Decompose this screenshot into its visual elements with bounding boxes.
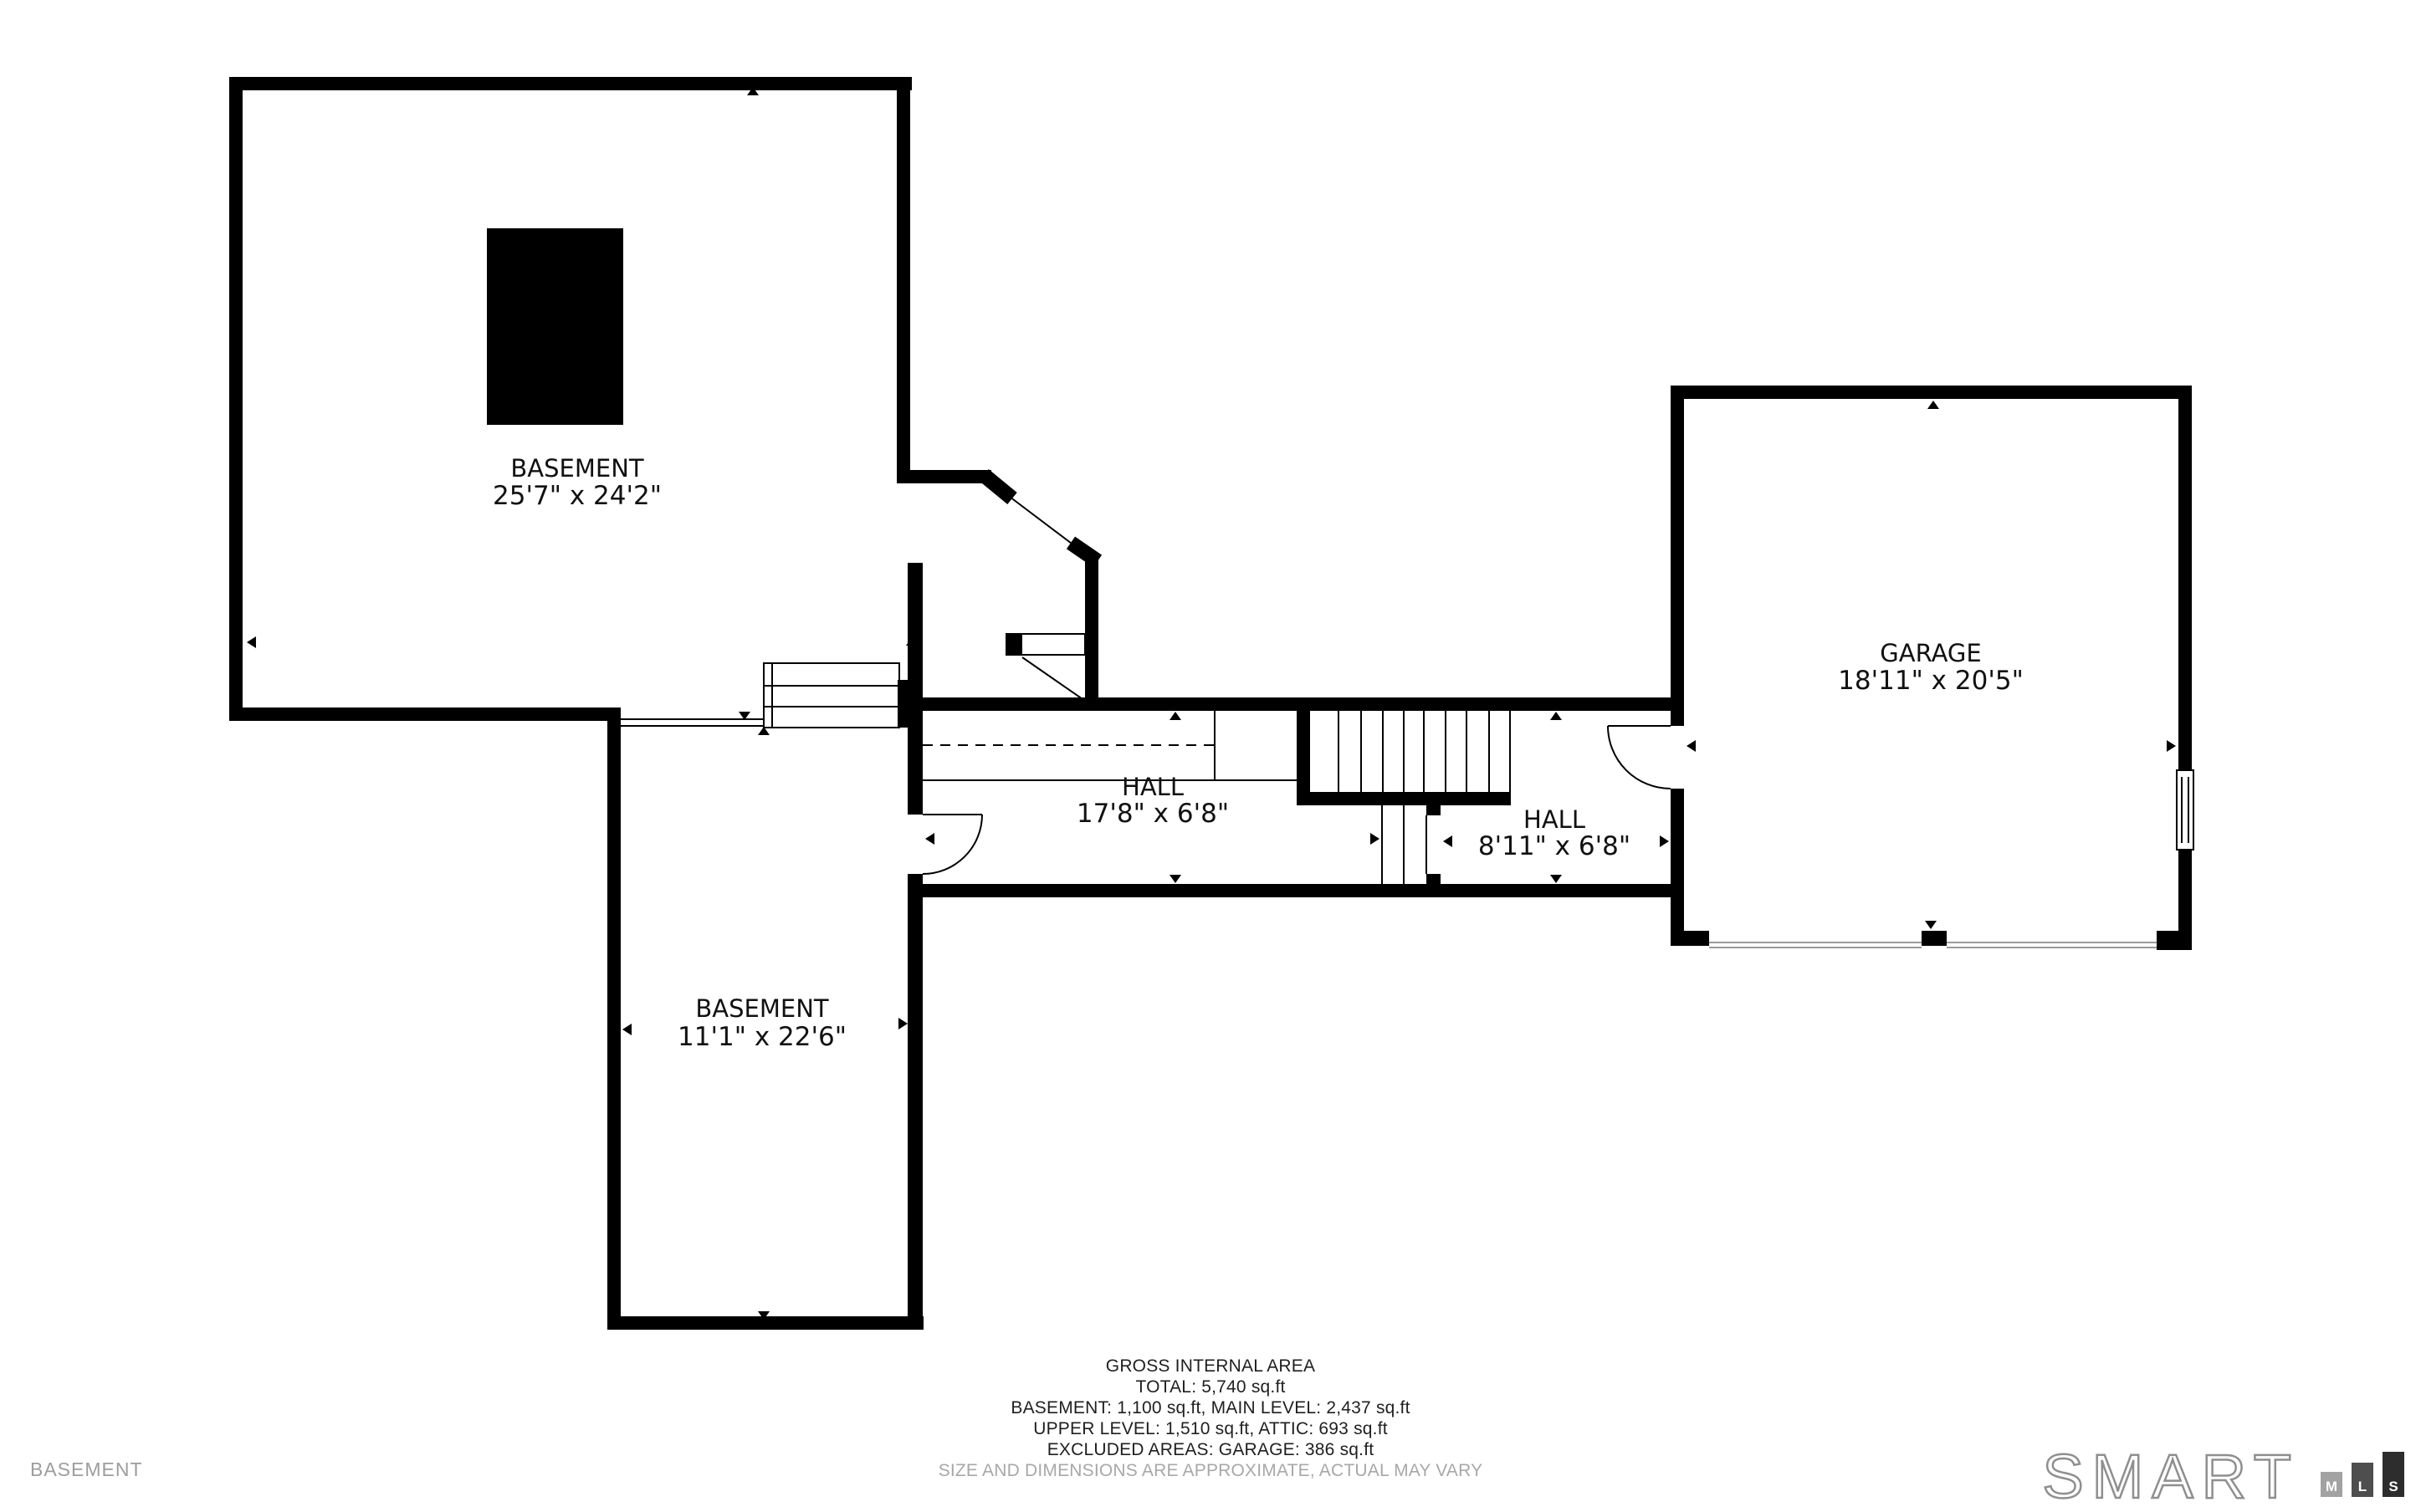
angled-walls xyxy=(984,475,1098,561)
area-summary-total: TOTAL: 5,740 sq.ft xyxy=(0,1377,2421,1397)
room-opening-lines xyxy=(621,719,764,726)
angled-window xyxy=(1006,494,1075,546)
room-label-basement-small: BASEMENT xyxy=(695,994,829,1023)
room-label-basement-large: BASEMENT xyxy=(510,454,644,483)
logo-block-s: S xyxy=(2383,1452,2404,1497)
stair-railing xyxy=(1006,634,1085,701)
stair-treads-main-flight xyxy=(1338,711,1510,792)
area-summary-title: GROSS INTERNAL AREA xyxy=(0,1356,2421,1377)
mechanical-block xyxy=(487,228,623,425)
room-label-hall-1: HALL xyxy=(1122,773,1184,801)
room-dims-basement-large: 25'7" x 24'2" xyxy=(493,481,662,511)
stair-treads-lower-flight xyxy=(1382,805,1426,884)
smartmls-logo-blocks: M L S xyxy=(2311,1452,2404,1497)
area-summary-line2: UPPER LEVEL: 1,510 sq.ft, ATTIC: 693 sq.… xyxy=(0,1418,2421,1439)
room-label-hall-2: HALL xyxy=(1523,805,1585,834)
floorplan-drawing: BASEMENT 25'7" x 24'2" BASEMENT 11'1" x … xyxy=(0,0,2421,1512)
landing-steps xyxy=(764,663,899,728)
smartmls-logo: SMART M L S xyxy=(2042,1446,2404,1497)
logo-block-l: L xyxy=(2352,1463,2373,1497)
door-basement-to-hall xyxy=(923,815,982,874)
smartmls-logo-brand: SMART xyxy=(2042,1446,2300,1508)
logo-block-m: M xyxy=(2321,1472,2342,1497)
garage-window xyxy=(2177,770,2193,850)
room-dims-hall-1: 17'8" x 6'8" xyxy=(1077,799,1229,829)
room-dims-basement-small: 11'1" x 22'6" xyxy=(678,1022,847,1052)
level-watermark: BASEMENT xyxy=(30,1458,143,1481)
room-dims-garage: 18'11" x 20'5" xyxy=(1838,666,2024,696)
door-hall-to-garage xyxy=(1608,726,1671,789)
room-dims-hall-2: 8'11" x 6'8" xyxy=(1478,831,1630,861)
room-label-garage: GARAGE xyxy=(1880,639,1981,667)
floorplan-page: BASEMENT 25'7" x 24'2" BASEMENT 11'1" x … xyxy=(0,0,2421,1512)
area-summary-line1: BASEMENT: 1,100 sq.ft, MAIN LEVEL: 2,437… xyxy=(0,1397,2421,1418)
